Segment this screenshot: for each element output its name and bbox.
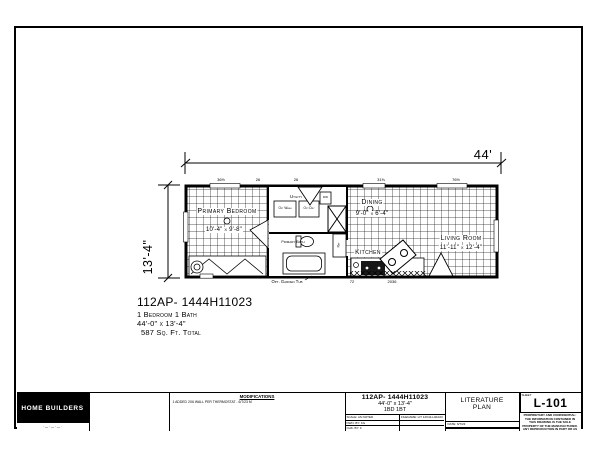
room-label-utility: Utility [289, 195, 303, 200]
field-checked-by: CHK. BY: F [346, 425, 400, 431]
room-dims-dining: 9'-0" x 6'-4" [355, 211, 390, 217]
sheet-number: L-101 [534, 396, 568, 410]
washer-label: Opt Wash [277, 207, 292, 210]
tick-label: 26 [293, 178, 299, 182]
room-label-dining: Dining [360, 199, 383, 206]
title-block: HOME BUILDERS · — · — · — · MODIFICATION… [17, 392, 581, 431]
title-bed-bath: 1BD 1BT [346, 407, 445, 413]
sheet-title-line2: PLAN [446, 404, 519, 411]
summary-bed-bath: 1 Bedroom 1 Bath [137, 311, 252, 319]
sheet-label: SHEET [522, 393, 532, 397]
title-block-plan-info-cell: 112AP- 1444H11023 44'-0" x 13'-4" 1BD 1B… [345, 393, 445, 431]
title-block-sheet-title-cell: LITERATURE PLAN DATE: 6/7/23 [445, 393, 519, 431]
kitchen-sink [354, 263, 359, 268]
bedroom-ceiling-fan [224, 218, 230, 224]
room-label-primary-bedroom: Primary Bedroom [196, 208, 257, 215]
sheet-title-line1: LITERATURE [446, 397, 519, 404]
tick-label: 26 [255, 178, 261, 182]
room-dims-living-room: 11'-11" x 12'-4" [439, 245, 483, 251]
water-heater [191, 261, 203, 273]
shower [328, 206, 346, 232]
field-blank [400, 425, 445, 431]
company-name: HOME BUILDERS [21, 405, 83, 412]
dryer-label: Opt Dry [303, 207, 316, 210]
ref-label: Ref [337, 242, 340, 249]
summary-size: 44'-0" x 13'-4" [137, 320, 252, 328]
dishwasher-label: DW [322, 196, 329, 199]
bottom-wall-hatch [350, 271, 426, 277]
dim-label-height: 13'-4" [142, 239, 155, 276]
title-block-logo-cell: HOME BUILDERS · — · — · — · [17, 393, 89, 431]
modifications-note: 1 ADDED 2X6 WALL PER THERMOSTAT - 6/7/23… [173, 400, 342, 404]
tick-label: 31⅜ [376, 178, 386, 182]
tick-label: 76½ [451, 178, 461, 182]
title-block-sheet-number-cell: SHEET L-101 PROPRIETARY AND CONFIDENTIAL… [519, 393, 581, 431]
title-block-modifications-cell: MODIFICATIONS 1 ADDED 2X6 WALL PER THERM… [169, 393, 345, 431]
plan-summary: 112AP- 1444H11023 1 Bedroom 1 Bath 44'-0… [137, 296, 252, 338]
room-label-living-room: Living Room [440, 235, 483, 242]
summary-area: 587 Sq. Ft. Total [141, 329, 252, 337]
blank-row [446, 428, 519, 429]
drawing-sheet: 44' 13'-4" Primary Bedroom 10'-4" x 9'-8… [0, 0, 600, 463]
company-logo: HOME BUILDERS [17, 393, 89, 423]
title-model-number: 112AP- 1444H11023 [346, 394, 445, 401]
title-block-blank-cell [89, 393, 169, 431]
room-label-primary-bath: Primary Bath [280, 241, 305, 245]
room-label-kitchen: Kitchen [354, 250, 382, 257]
room-dims-primary-bedroom: 10'-4" x 9'-8" [205, 227, 243, 233]
company-tagline: · — · — · — · [17, 423, 89, 431]
dim-label-width: 44' [473, 148, 493, 161]
tick-label: 72 [349, 280, 355, 284]
proprietary-fineprint: PROPRIETARY AND CONFIDENTIAL: THE INFORM… [520, 413, 581, 431]
tick-label: 2036 [387, 280, 398, 284]
garden-tub-label: Opt. Garden Tub [271, 280, 304, 284]
tick-label: 36½ [216, 178, 226, 182]
modifications-header: MODIFICATIONS [173, 394, 342, 399]
model-number: 112AP- 1444H11023 [137, 296, 252, 308]
